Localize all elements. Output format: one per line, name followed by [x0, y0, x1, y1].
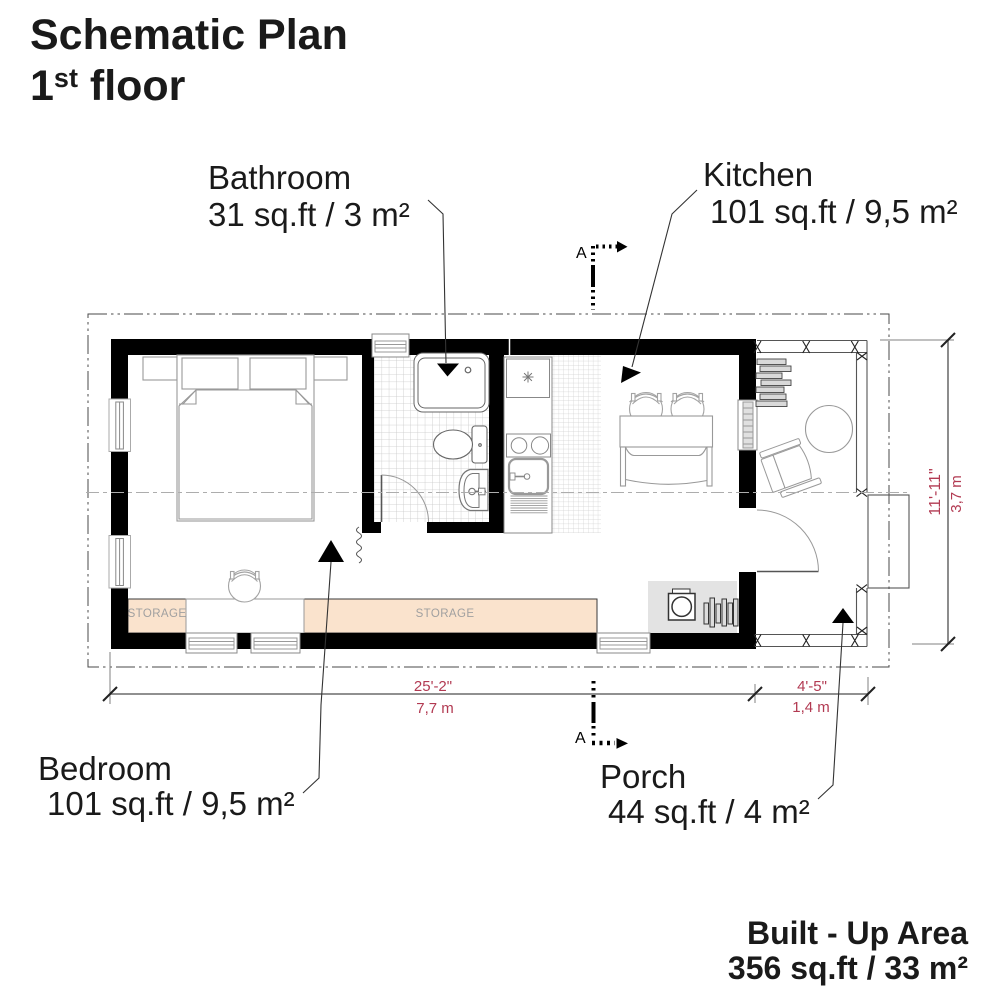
- svg-text:25'-2": 25'-2": [414, 678, 452, 695]
- svg-text:Built - Up Area: Built - Up Area: [747, 915, 968, 951]
- svg-text:A: A: [575, 730, 586, 747]
- svg-text:101 sq.ft / 9,5 m²: 101 sq.ft / 9,5 m²: [710, 193, 958, 230]
- svg-text:44 sq.ft / 4 m²: 44 sq.ft / 4 m²: [608, 793, 810, 830]
- svg-text:11'-11": 11'-11": [927, 468, 944, 515]
- svg-text:STORAGE: STORAGE: [416, 608, 475, 620]
- svg-text:7,7 m: 7,7 m: [416, 700, 454, 717]
- svg-text:Kitchen: Kitchen: [703, 156, 813, 193]
- svg-text:Bedroom: Bedroom: [38, 750, 172, 787]
- svg-text:Bathroom: Bathroom: [208, 159, 351, 196]
- svg-text:Schematic Plan: Schematic Plan: [30, 11, 348, 59]
- svg-text:101 sq.ft / 9,5 m²: 101 sq.ft / 9,5 m²: [47, 785, 295, 822]
- svg-text:356 sq.ft / 33 m²: 356 sq.ft / 33 m²: [728, 950, 968, 986]
- svg-text:1,4 m: 1,4 m: [792, 699, 830, 716]
- svg-text:1st floor: 1st floor: [30, 62, 186, 110]
- svg-text:4'-5": 4'-5": [797, 678, 827, 695]
- svg-text:31 sq.ft / 3 m²: 31 sq.ft / 3 m²: [208, 196, 410, 233]
- svg-text:A: A: [576, 245, 587, 262]
- svg-text:3,7 m: 3,7 m: [948, 475, 965, 513]
- svg-text:Porch: Porch: [600, 758, 686, 795]
- svg-text:STORAGE: STORAGE: [128, 608, 187, 620]
